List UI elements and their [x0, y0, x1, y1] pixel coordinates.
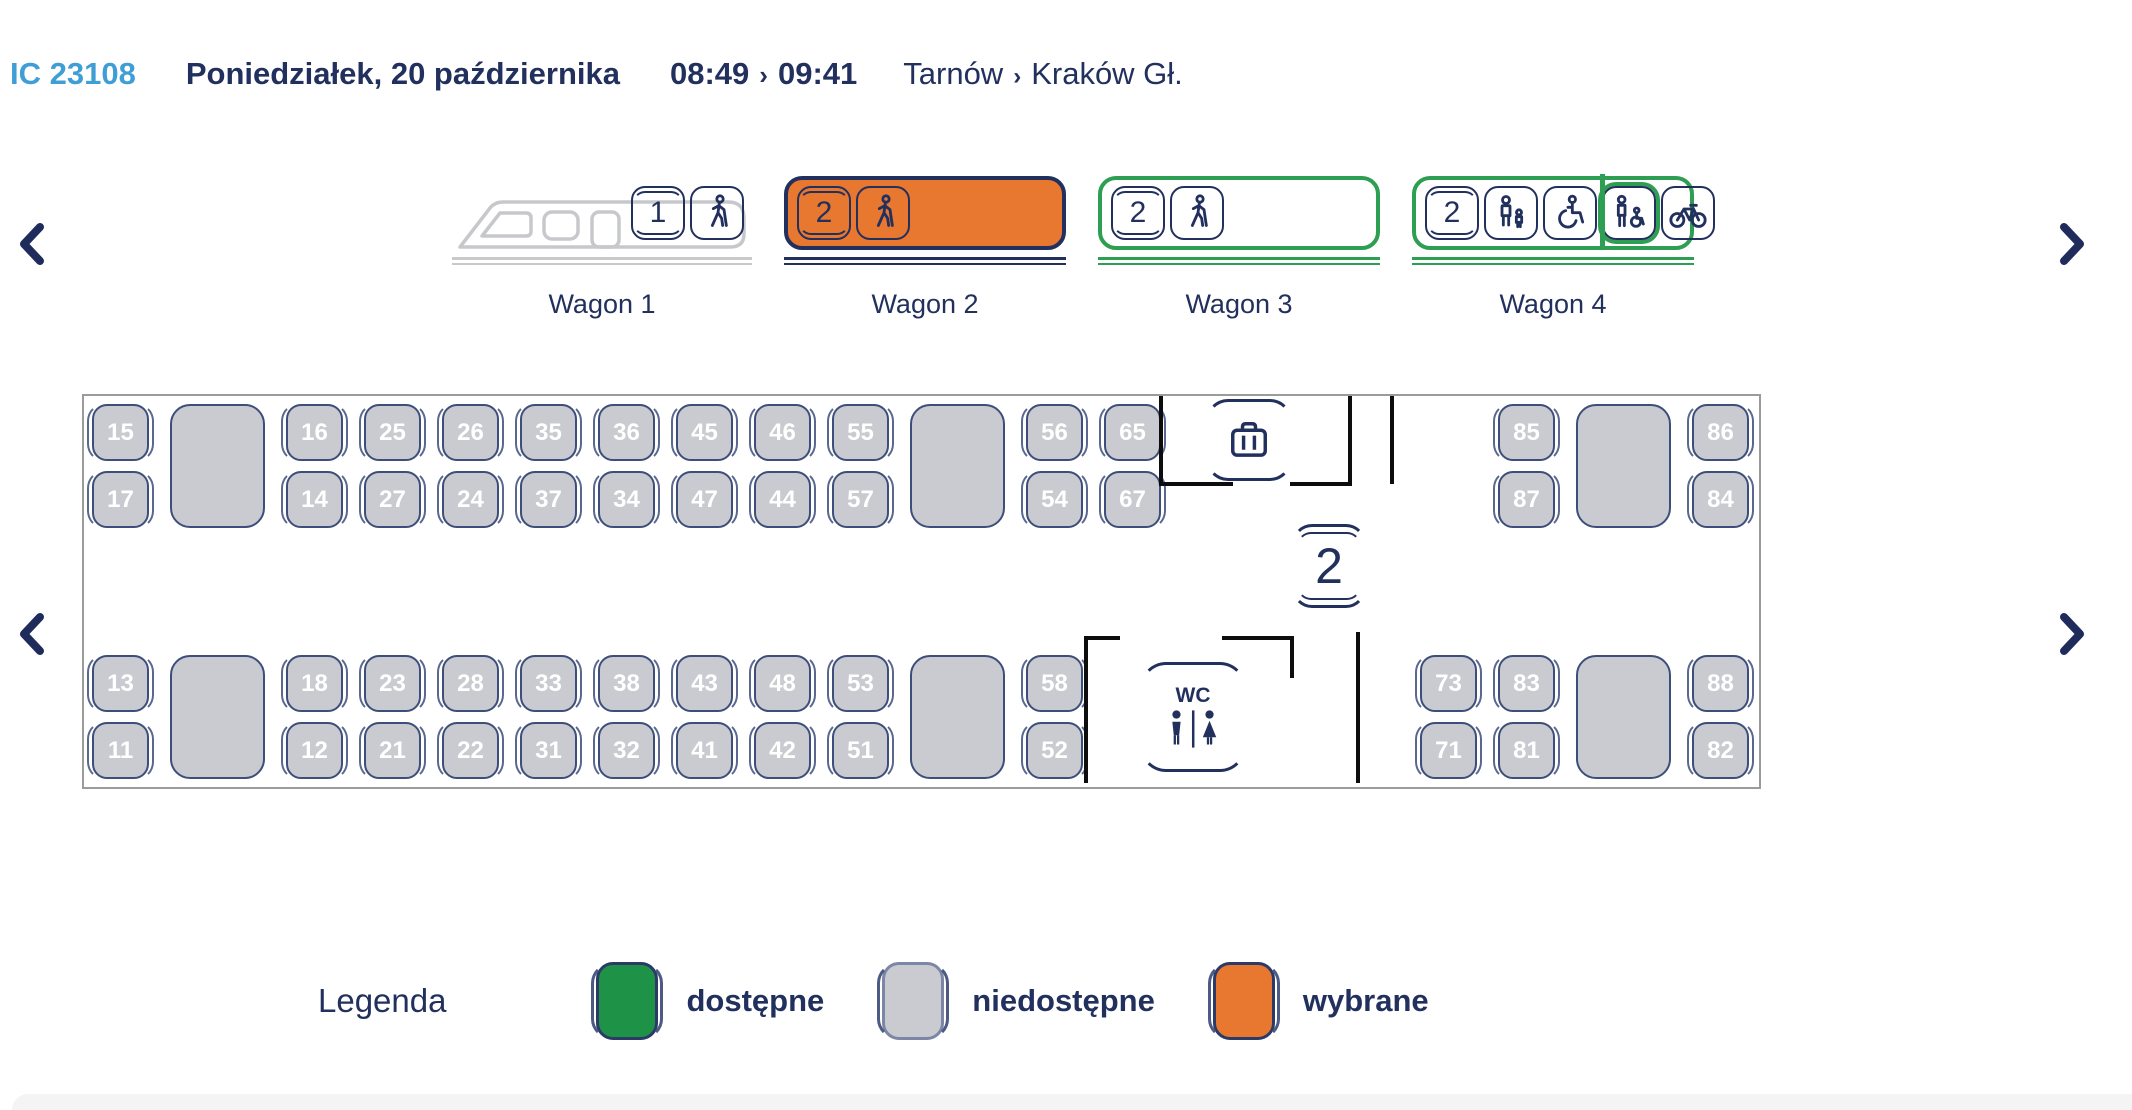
legend-label: niedostępne [972, 983, 1155, 1019]
wagon-item-1: 1Wagon 1 [452, 176, 752, 320]
seat-column: 4547 [676, 404, 733, 528]
legend-items: dostępneniedostępnewybrane [596, 962, 1486, 1040]
wall [1348, 396, 1352, 484]
seat-25[interactable]: 25 [364, 404, 421, 461]
class-number: 2 [1292, 524, 1366, 608]
wagon-underline [452, 257, 752, 265]
seat-35[interactable]: 35 [520, 404, 577, 461]
seat-73[interactable]: 73 [1420, 655, 1477, 712]
wheelchair-assist-icon [1602, 186, 1656, 240]
seat-21[interactable]: 21 [364, 722, 421, 779]
legend-item-unavailable: niedostępne [882, 962, 1155, 1040]
seat-swatch-available [596, 962, 658, 1040]
wagon-1-button[interactable]: 1 [452, 176, 752, 250]
chevron-left-icon [16, 222, 46, 266]
seat-column: 3634 [598, 404, 655, 528]
wagon-4-button[interactable]: 2 [1412, 176, 1694, 250]
seat-column: 5852 [1026, 655, 1083, 779]
legend-title: Legenda [318, 982, 446, 1020]
wall [1290, 636, 1294, 678]
seat-48[interactable]: 48 [754, 655, 811, 712]
seat-67[interactable]: 67 [1104, 471, 1161, 528]
seat-58[interactable]: 58 [1026, 655, 1083, 712]
seat-44[interactable]: 44 [754, 471, 811, 528]
trip-date: Poniedziałek, 20 października [186, 56, 620, 92]
seat-column: 5654 [1026, 404, 1083, 528]
wagon-underline [784, 257, 1066, 265]
seat-column: 6567 [1104, 404, 1161, 528]
class-marker: 2 [1292, 524, 1366, 608]
luggage-area [1206, 399, 1292, 481]
blocked-block [170, 655, 265, 779]
seat-selection-page: { "header": { "train_id": "IC 23108", "d… [0, 0, 2132, 1110]
seat-column: 1614 [286, 404, 343, 528]
seat-swatch-unavailable [882, 962, 944, 1040]
wagon-icons: 2 [1111, 186, 1224, 240]
seat-swatch-selected [1213, 962, 1275, 1040]
wc-area: WC [1140, 662, 1246, 772]
wagon-label: Wagon 3 [1185, 289, 1292, 320]
wall [1222, 636, 1294, 640]
trip-header: IC 23108 Poniedziałek, 20 października 0… [10, 56, 1183, 92]
seat-23[interactable]: 23 [364, 655, 421, 712]
seat-85[interactable]: 85 [1498, 404, 1555, 461]
seat-column: 1517 [92, 404, 149, 528]
wall [1390, 396, 1394, 484]
blocked-block [170, 404, 265, 528]
blocked-block [1576, 655, 1671, 779]
train-id: IC 23108 [10, 56, 136, 92]
seat-52[interactable]: 52 [1026, 722, 1083, 779]
wall [1159, 396, 1163, 484]
seat-11[interactable]: 11 [92, 722, 149, 779]
seat-27[interactable]: 27 [364, 471, 421, 528]
depart-time: 08:49 [670, 56, 749, 92]
wagon-label: Wagon 1 [548, 289, 655, 320]
seat-column: 2624 [442, 404, 499, 528]
wagon-item-2: 2Wagon 2 [784, 176, 1066, 320]
legend-item-selected: wybrane [1213, 962, 1429, 1040]
seat-grid-top-right: 85878684 [1498, 404, 1749, 528]
destination-station: Kraków Gł. [1031, 56, 1183, 92]
wagon-underline [1412, 257, 1694, 265]
seat-84[interactable]: 84 [1692, 471, 1749, 528]
seat-45[interactable]: 45 [676, 404, 733, 461]
toilet-icon [1162, 708, 1224, 750]
seat-37[interactable]: 37 [520, 471, 577, 528]
legend-item-available: dostępne [596, 962, 824, 1040]
suitcase-icon [1223, 414, 1275, 466]
wheelchair-icon [1543, 186, 1597, 240]
seat-88[interactable]: 88 [1692, 655, 1749, 712]
seat-column: 3832 [598, 655, 655, 779]
blocked-block [910, 655, 1005, 779]
family-icon [1484, 186, 1538, 240]
wall [1159, 482, 1233, 486]
seat-17[interactable]: 17 [92, 471, 149, 528]
origin-station: Tarnów [903, 56, 1003, 92]
seat-46[interactable]: 46 [754, 404, 811, 461]
wall [1356, 632, 1360, 783]
blocked-block [1576, 404, 1671, 528]
seat-column: 2822 [442, 655, 499, 779]
wagon-item-4: 2Wagon 4 [1412, 176, 1694, 320]
seatmap-prev-button[interactable] [16, 612, 46, 656]
class-2-icon: 2 [1425, 186, 1479, 240]
seat-column: 1311 [92, 655, 149, 779]
seat-34[interactable]: 34 [598, 471, 655, 528]
wall [1084, 636, 1088, 783]
wagon-label: Wagon 2 [871, 289, 978, 320]
seat-87[interactable]: 87 [1498, 471, 1555, 528]
legend-label: wybrane [1303, 983, 1429, 1019]
route-arrow-icon: › [1013, 63, 1021, 91]
seat-42[interactable]: 42 [754, 722, 811, 779]
seat-24[interactable]: 24 [442, 471, 499, 528]
seat-column: 8381 [1498, 655, 1555, 779]
class-2-icon: 2 [1111, 186, 1165, 240]
class-1-icon: 1 [631, 186, 685, 240]
seat-column: 1812 [286, 655, 343, 779]
time-arrow-icon: › [759, 60, 768, 91]
seat-71[interactable]: 71 [1420, 722, 1477, 779]
seat-51[interactable]: 51 [832, 722, 889, 779]
seat-82[interactable]: 82 [1692, 722, 1749, 779]
seat-column: 8684 [1692, 404, 1749, 528]
wagon-3-button[interactable]: 2 [1098, 176, 1380, 250]
walker-icon [856, 186, 910, 240]
seat-18[interactable]: 18 [286, 655, 343, 712]
seat-column: 4842 [754, 655, 811, 779]
seat-12[interactable]: 12 [286, 722, 343, 779]
chevron-left-icon [16, 612, 46, 656]
wagon-label: Wagon 4 [1499, 289, 1606, 320]
class-2-icon: 2 [797, 186, 851, 240]
seat-column: 3537 [520, 404, 577, 528]
seat-column: 4341 [676, 655, 733, 779]
wagon-icons: 2 [797, 186, 910, 240]
wall [1290, 482, 1352, 486]
seat-column: 2527 [364, 404, 421, 528]
seat-28[interactable]: 28 [442, 655, 499, 712]
legend: Legenda dostępneniedostępnewybrane [318, 962, 1487, 1040]
seat-65[interactable]: 65 [1104, 404, 1161, 461]
trip-route: Tarnów › Kraków Gł. [903, 56, 1183, 92]
wagon-item-3: 2Wagon 3 [1098, 176, 1380, 320]
seat-41[interactable]: 41 [676, 722, 733, 779]
seat-53[interactable]: 53 [832, 655, 889, 712]
seat-15[interactable]: 15 [92, 404, 149, 461]
chevron-right-icon [2058, 222, 2088, 266]
seat-column: 5351 [832, 655, 889, 779]
wagon-icons: 1 [631, 186, 744, 240]
seat-33[interactable]: 33 [520, 655, 577, 712]
wagon-prev-button[interactable] [16, 222, 46, 266]
trip-times: 08:49 › 09:41 [670, 56, 857, 92]
seat-22[interactable]: 22 [442, 722, 499, 779]
seat-36[interactable]: 36 [598, 404, 655, 461]
seat-column: 4644 [754, 404, 811, 528]
seat-column: 8882 [1692, 655, 1749, 779]
seat-column: 8587 [1498, 404, 1555, 528]
seat-43[interactable]: 43 [676, 655, 733, 712]
wagon-underline [1098, 257, 1380, 265]
chevron-right-icon [2058, 612, 2088, 656]
seat-grid-bottom-left: 1311181223212822333138324341484253515852 [92, 655, 1083, 779]
wc-label: WC [1176, 685, 1211, 706]
seat-56[interactable]: 56 [1026, 404, 1083, 461]
seat-57[interactable]: 57 [832, 471, 889, 528]
seat-54[interactable]: 54 [1026, 471, 1083, 528]
wagon-zone-divider [1600, 174, 1605, 250]
legend-label: dostępne [686, 983, 824, 1019]
bottom-scroll-bar[interactable] [12, 1094, 2132, 1110]
walker-icon [1170, 186, 1224, 240]
wagon-next-button[interactable] [2058, 222, 2088, 266]
wagon-icons: 2 [1425, 186, 1715, 240]
seat-16[interactable]: 16 [286, 404, 343, 461]
seat-38[interactable]: 38 [598, 655, 655, 712]
seat-31[interactable]: 31 [520, 722, 577, 779]
blocked-block [910, 404, 1005, 528]
seat-grid-top-left: 1517161425272624353736344547464455575654… [92, 404, 1161, 528]
seat-map-wagon-2: 1517161425272624353736344547464455575654… [82, 394, 1761, 789]
seat-column: 7371 [1420, 655, 1477, 779]
seat-83[interactable]: 83 [1498, 655, 1555, 712]
seat-14[interactable]: 14 [286, 471, 343, 528]
wall [1084, 636, 1120, 640]
walker-icon [690, 186, 744, 240]
seat-26[interactable]: 26 [442, 404, 499, 461]
wagon-2-button[interactable]: 2 [784, 176, 1066, 250]
seat-86[interactable]: 86 [1692, 404, 1749, 461]
seat-55[interactable]: 55 [832, 404, 889, 461]
seat-grid-bottom-right: 737183818882 [1420, 655, 1749, 779]
seat-column: 5557 [832, 404, 889, 528]
wagon-selector: 1Wagon 12Wagon 22Wagon 32Wagon 4 [452, 176, 1694, 320]
seat-column: 3331 [520, 655, 577, 779]
bicycle-icon [1661, 186, 1715, 240]
seatmap-next-button[interactable] [2058, 612, 2088, 656]
arrive-time: 09:41 [778, 56, 857, 92]
seat-32[interactable]: 32 [598, 722, 655, 779]
seat-13[interactable]: 13 [92, 655, 149, 712]
seat-column: 2321 [364, 655, 421, 779]
seat-47[interactable]: 47 [676, 471, 733, 528]
seat-81[interactable]: 81 [1498, 722, 1555, 779]
